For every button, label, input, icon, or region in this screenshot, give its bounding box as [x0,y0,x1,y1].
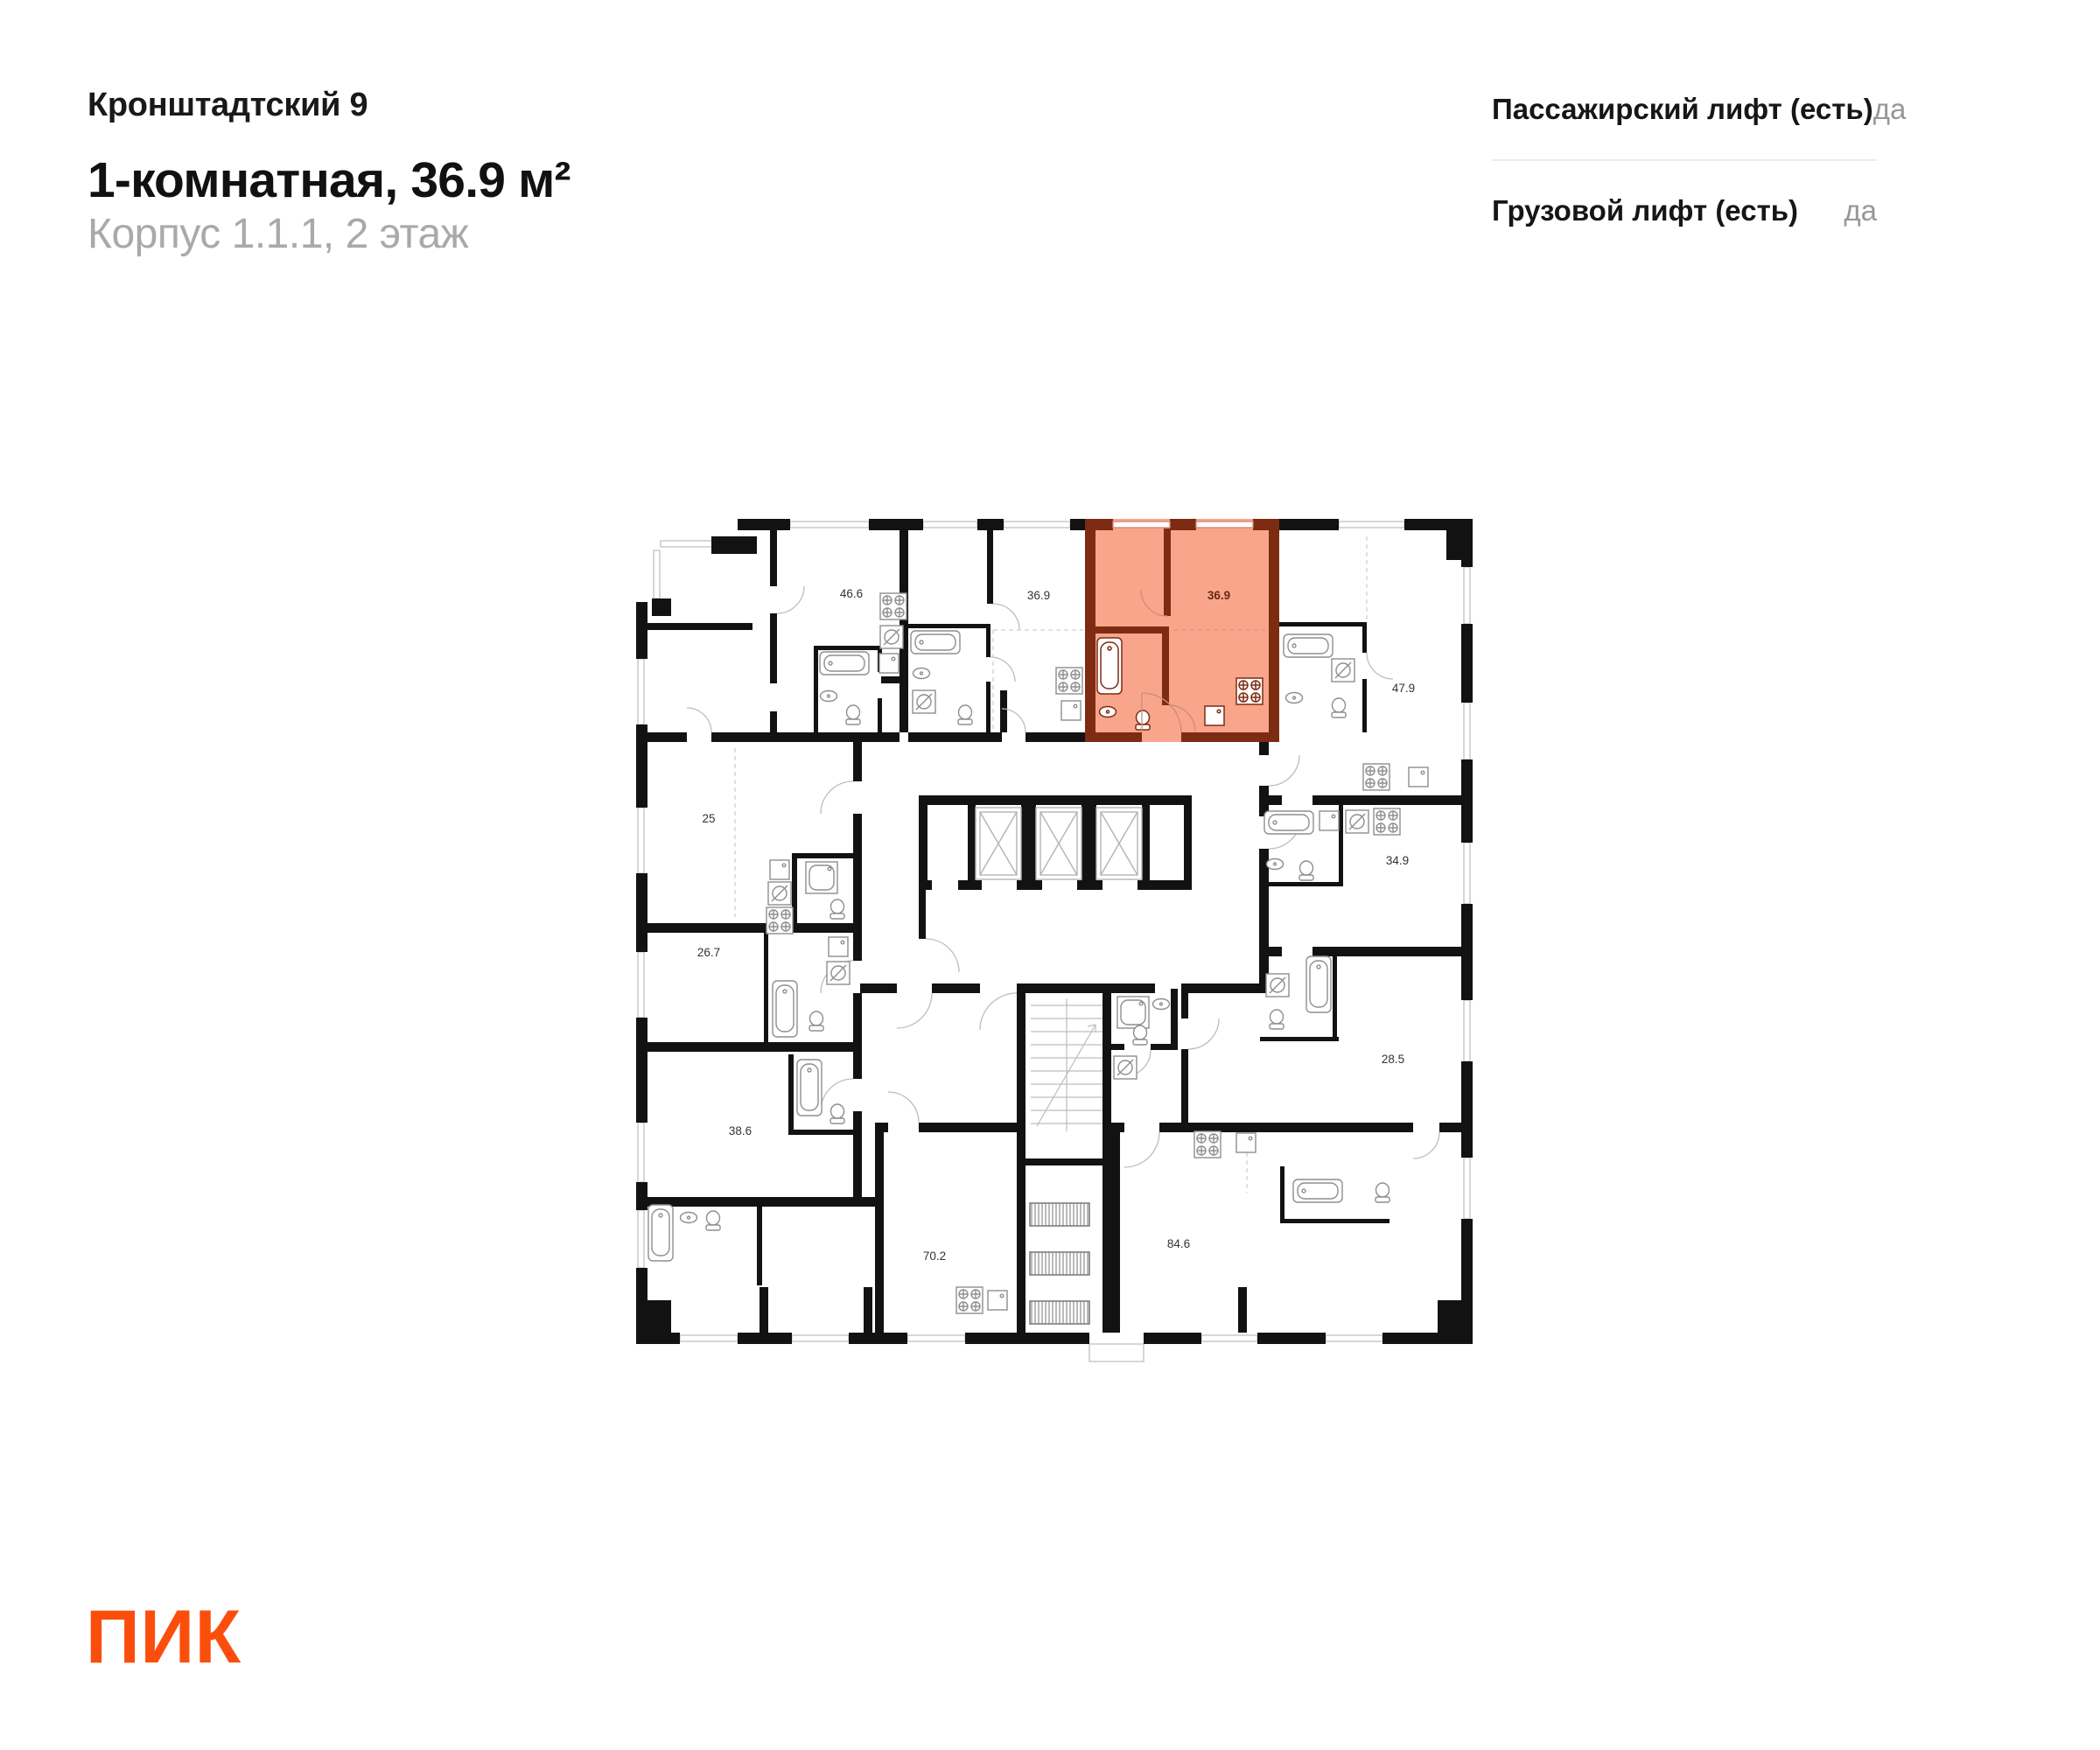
vent-shaft [1030,1203,1089,1226]
info-row-cargo-lift: Грузовой лифт (есть) да [1492,161,1877,261]
bathtub-icon [911,631,960,654]
toilet-icon [1332,698,1346,717]
toilet-icon [1375,1183,1389,1202]
vent-shafts [1030,1203,1089,1324]
sink-icon [1409,767,1428,787]
stove-icon [956,1287,983,1313]
toilet-icon [809,1011,823,1031]
room-area-label: 25 [702,812,715,825]
stove-icon [766,907,793,934]
vent-shaft [1030,1252,1089,1275]
sink-icon [1153,999,1170,1010]
washer-icon [1114,1056,1137,1079]
room-area-label: 38.6 [729,1124,752,1137]
entrance-porch [1089,1344,1144,1361]
vent-shaft [1030,1301,1089,1324]
sink-icon [829,937,848,956]
windows [638,521,1470,1361]
sink-icon [988,1291,1007,1310]
page: { "header": { "project_title": "Кронштад… [0,0,2100,1750]
room-area-label: 28.5 [1382,1053,1404,1066]
bathtub-icon [1264,811,1313,834]
toilet-icon [1299,861,1313,880]
bathtub-icon [1306,956,1331,1012]
room-area-label: 26.7 [697,946,720,959]
info-row-passenger-lift: Пассажирский лифт (есть) да [1492,59,1877,161]
page-subtitle: Корпус 1.1.1, 2 этаж [87,210,468,258]
toilet-icon [830,899,844,919]
staircase [1031,998,1102,1131]
bathtub-icon [648,1205,673,1261]
sink-icon [681,1213,697,1223]
shower-icon [1117,997,1149,1028]
bathtub-icon [797,1060,822,1116]
sink-icon [1319,811,1339,830]
sink-icon [1286,693,1303,703]
toilet-icon [1133,1025,1147,1045]
sink-icon [913,668,930,679]
washer-icon [913,690,935,713]
stove-icon [880,593,906,619]
elevator-shafts [976,808,1142,879]
room-area-label: 36.9 [1027,589,1050,602]
info-row-label: Грузовой лифт (есть) [1492,194,1798,227]
sink-icon [821,691,837,702]
washer-icon [1332,659,1354,682]
floorplan: 46.6 36.9 36.9 47.9 25 34.9 26.7 28.5 38… [634,519,1474,1363]
stove-icon [1236,678,1263,704]
sink-icon [1100,707,1116,717]
sink-icon [1061,701,1081,720]
sink-icon [1205,706,1224,725]
stove-icon [1056,668,1082,694]
toilet-icon [1270,1010,1284,1029]
toilet-icon [846,705,860,724]
shower-icon [806,862,837,893]
room-area-label: 70.2 [923,1249,946,1263]
bathtub-icon [1284,634,1333,657]
project-title: Кронштадтский 9 [87,87,367,124]
room-area-label: 84.6 [1167,1237,1190,1250]
sink-icon [879,654,899,673]
stove-icon [1194,1131,1221,1158]
stove-icon [1363,764,1389,790]
elevator-shaft [976,808,1021,879]
info-row-label: Пассажирский лифт (есть) [1492,93,1873,126]
info-row-value: да [1873,93,1907,126]
bathtub-icon [820,652,869,675]
stove-icon [1374,808,1400,835]
bathtub-icon [773,981,797,1037]
washer-icon [1266,974,1289,997]
highlighted-apartment[interactable] [1085,519,1279,742]
washer-icon [768,882,791,905]
info-panel: Пассажирский лифт (есть) да Грузовой лиф… [1492,59,1877,261]
toilet-icon [830,1104,844,1123]
sink-icon [1267,859,1284,870]
washer-icon [880,626,903,648]
bathtub-icon [1293,1179,1342,1202]
elevator-shaft [1036,808,1081,879]
info-row-value: да [1844,194,1877,227]
sink-icon [1236,1133,1256,1152]
toilet-icon [1136,710,1150,730]
room-area-label: 47.9 [1392,682,1415,695]
toilet-icon [706,1211,720,1230]
highlighted-area-label: 36.9 [1207,589,1230,602]
elevator-shaft [1096,808,1142,879]
room-area-label: 46.6 [840,587,863,600]
washer-icon [1346,810,1368,833]
pik-logo[interactable]: ПИК [86,1599,241,1675]
room-area-label: 34.9 [1386,854,1409,867]
page-title: 1-комнатная, 36.9 м² [87,151,570,209]
bathtub-icon [1097,638,1122,694]
toilet-icon [958,705,972,724]
sink-icon [770,860,789,879]
washer-icon [827,962,850,984]
